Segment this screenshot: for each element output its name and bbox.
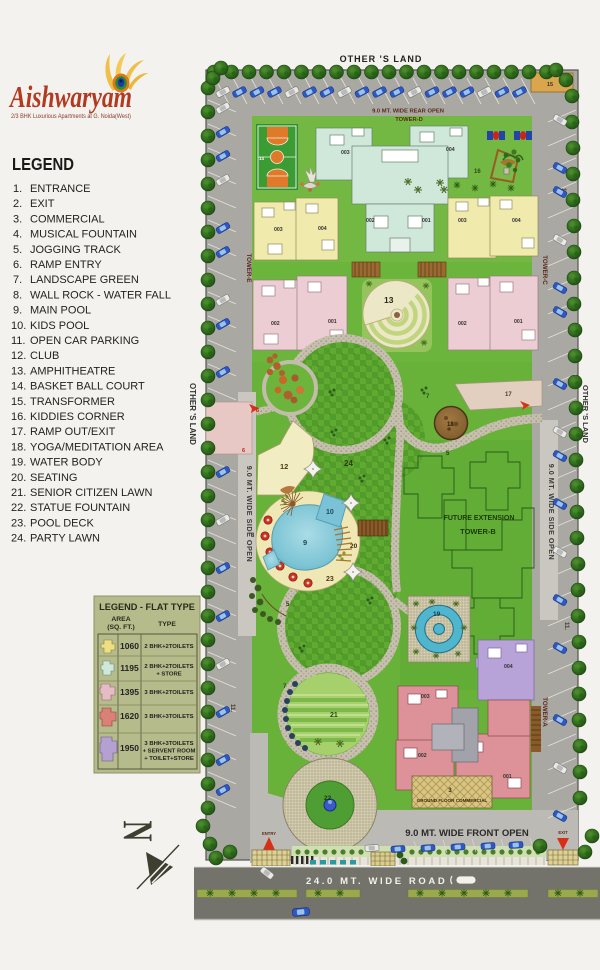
svg-text:10: 10	[326, 509, 334, 516]
svg-text:17.: 17.	[11, 426, 26, 438]
svg-text:3.: 3.	[13, 213, 22, 225]
svg-text:GROUND FLOOR COMMERCIAL: GROUND FLOOR COMMERCIAL	[417, 798, 488, 803]
svg-text:2 BHK+2TOILETS: 2 BHK+2TOILETS	[144, 664, 193, 670]
svg-text:13.: 13.	[11, 365, 26, 377]
svg-text:23.: 23.	[11, 517, 26, 529]
svg-text:OTHER 'S LAND: OTHER 'S LAND	[188, 383, 197, 445]
svg-text:9.0 MT. WIDE FRONT OPEN: 9.0 MT. WIDE FRONT OPEN	[405, 828, 529, 839]
svg-text:OPEN CAR PARKING: OPEN CAR PARKING	[30, 335, 139, 347]
svg-text:ENTRANCE: ENTRANCE	[30, 183, 91, 195]
svg-text:16.: 16.	[11, 411, 26, 423]
svg-text:9.0 MT. WIDE SIDE OPEN: 9.0 MT. WIDE SIDE OPEN	[245, 466, 254, 562]
svg-text:AREA: AREA	[111, 616, 130, 623]
svg-text:12: 12	[280, 462, 288, 471]
svg-text:KIDS POOL: KIDS POOL	[30, 320, 89, 332]
svg-text:PARTY LAWN: PARTY LAWN	[30, 533, 100, 545]
svg-text:004: 004	[446, 147, 455, 153]
svg-text:002: 002	[418, 753, 427, 759]
svg-text:12.: 12.	[11, 350, 26, 362]
svg-text:TOWER-C: TOWER-C	[541, 255, 548, 285]
svg-text:1620: 1620	[120, 711, 139, 721]
svg-text:1060: 1060	[120, 641, 139, 651]
svg-text:004: 004	[318, 226, 327, 232]
svg-text:WALL ROCK - WATER FALL: WALL ROCK - WATER FALL	[30, 289, 171, 301]
svg-text:1195: 1195	[120, 663, 139, 673]
svg-text:3 BHK+2TOILETS: 3 BHK+2TOILETS	[144, 690, 193, 696]
svg-text:002: 002	[271, 321, 280, 327]
svg-text:003: 003	[341, 150, 350, 156]
svg-text:15.: 15.	[11, 396, 26, 408]
svg-text:2 BHK+2TOILETS: 2 BHK+2TOILETS	[144, 644, 193, 650]
svg-text:004: 004	[504, 664, 513, 670]
svg-text:1950: 1950	[120, 743, 139, 753]
svg-text:BASKET BALL COURT: BASKET BALL COURT	[30, 381, 145, 393]
svg-text:11.: 11.	[11, 335, 25, 347]
svg-text:14: 14	[259, 156, 264, 161]
svg-text:001: 001	[503, 774, 512, 780]
svg-text:LANDSCAPE GREEN: LANDSCAPE GREEN	[30, 274, 139, 286]
svg-text:STATUE FOUNTAIN: STATUE FOUNTAIN	[30, 502, 130, 514]
svg-text:EXIT: EXIT	[558, 830, 568, 835]
svg-text:16: 16	[474, 169, 481, 175]
svg-text:5.: 5.	[13, 244, 22, 256]
svg-text:ENTRY: ENTRY	[262, 831, 276, 836]
svg-text:MAIN POOL: MAIN POOL	[30, 305, 91, 317]
svg-text:20.: 20.	[11, 472, 26, 484]
svg-text:24.: 24.	[11, 533, 26, 545]
svg-text:+ TOILET+STORE: + TOILET+STORE	[144, 756, 194, 762]
svg-text:AMPHITHEATRE: AMPHITHEATRE	[30, 365, 115, 377]
svg-text:20: 20	[350, 543, 358, 550]
svg-text:3 BHK+3TOILETS: 3 BHK+3TOILETS	[144, 714, 193, 720]
svg-text:YOGA/MEDITATION AREA: YOGA/MEDITATION AREA	[30, 441, 164, 453]
svg-text:RAMP OUT/EXIT: RAMP OUT/EXIT	[30, 426, 116, 438]
svg-text:TOWER-E: TOWER-E	[245, 253, 252, 282]
svg-text:13: 13	[384, 295, 394, 305]
svg-text:1395: 1395	[120, 687, 139, 697]
svg-text:+ SERVENT ROOM: + SERVENT ROOM	[143, 749, 196, 755]
svg-text:OTHER 'S LAND: OTHER 'S LAND	[340, 54, 423, 64]
svg-text:6.: 6.	[13, 259, 22, 271]
svg-text:003: 003	[274, 227, 283, 233]
svg-text:COMMERCIAL: COMMERCIAL	[30, 213, 105, 225]
svg-text:1.: 1.	[13, 183, 22, 195]
svg-text:JOGGING TRACK: JOGGING TRACK	[30, 244, 122, 256]
svg-text:TOWER-B: TOWER-B	[460, 527, 496, 536]
svg-text:2/3 BHK Luxurious Apartments a: 2/3 BHK Luxurious Apartments at G. Noida…	[11, 113, 131, 120]
svg-text:4.: 4.	[13, 229, 22, 241]
svg-text:KIDDIES CORNER: KIDDIES CORNER	[30, 411, 125, 423]
svg-text:SEATING: SEATING	[30, 472, 77, 484]
svg-text:19.: 19.	[11, 457, 26, 469]
svg-text:15: 15	[547, 82, 553, 88]
svg-text:6: 6	[256, 408, 259, 414]
svg-text:6: 6	[242, 448, 245, 454]
svg-text:2.: 2.	[13, 198, 22, 210]
svg-text:18.: 18.	[11, 441, 26, 453]
svg-text:RAMP ENTRY: RAMP ENTRY	[30, 259, 102, 271]
svg-text:002: 002	[458, 321, 467, 327]
svg-text:Aishwaryam: Aishwaryam	[8, 79, 132, 114]
svg-text:24.0 MT. WIDE ROAD: 24.0 MT. WIDE ROAD	[306, 876, 447, 887]
svg-text:001: 001	[422, 218, 431, 224]
svg-text:9.: 9.	[13, 305, 22, 317]
svg-text:3 BHK+3TOILETS: 3 BHK+3TOILETS	[144, 741, 193, 747]
svg-text:001: 001	[328, 319, 337, 325]
svg-text:9.0 MT. WIDE SIDE OPEN: 9.0 MT. WIDE SIDE OPEN	[547, 464, 556, 560]
svg-text:21: 21	[330, 712, 338, 719]
svg-text:11.: 11.	[563, 622, 569, 630]
svg-text:24: 24	[344, 459, 353, 468]
svg-text:POOL DECK: POOL DECK	[30, 517, 94, 529]
svg-text:TRANSFORMER: TRANSFORMER	[30, 396, 115, 408]
svg-text:19: 19	[433, 611, 441, 618]
svg-text:23: 23	[326, 576, 334, 583]
svg-text:MUSICAL FOUNTAIN: MUSICAL FOUNTAIN	[30, 229, 137, 241]
svg-text:8.: 8.	[13, 289, 22, 301]
svg-text:18: 18	[447, 422, 454, 428]
svg-text:22.: 22.	[11, 502, 26, 514]
svg-text:EXIT: EXIT	[30, 198, 55, 210]
svg-text:17: 17	[505, 392, 512, 398]
svg-text:9.0 MT. WIDE REAR OPEN: 9.0 MT. WIDE REAR OPEN	[372, 109, 444, 115]
svg-text:TOWER-D: TOWER-D	[395, 117, 423, 123]
svg-text:002: 002	[366, 218, 375, 224]
svg-text:FUTURE EXTENSION: FUTURE EXTENSION	[444, 515, 515, 522]
svg-text:9: 9	[303, 538, 307, 547]
svg-text:21.: 21.	[11, 487, 26, 499]
svg-text:LEGEND: LEGEND	[12, 154, 74, 174]
svg-text:001: 001	[514, 319, 523, 325]
svg-text:22: 22	[324, 795, 332, 802]
svg-text:003: 003	[421, 694, 430, 700]
svg-text:WATER BODY: WATER BODY	[30, 457, 103, 469]
svg-text:+ STORE: + STORE	[156, 672, 181, 678]
svg-text:CLUB: CLUB	[30, 350, 59, 362]
svg-text:7.: 7.	[13, 274, 22, 286]
svg-text:TYPE: TYPE	[158, 621, 176, 628]
svg-text:N: N	[113, 821, 159, 842]
svg-text:14.: 14.	[11, 381, 26, 393]
svg-text:TOWER-A: TOWER-A	[541, 697, 548, 727]
svg-text:SENIOR CITIZEN LAWN: SENIOR CITIZEN LAWN	[30, 487, 152, 499]
svg-text:10.: 10.	[11, 320, 26, 332]
svg-text:(SQ. FT.): (SQ. FT.)	[107, 624, 135, 631]
svg-text:LEGEND - FLAT TYPE: LEGEND - FLAT TYPE	[99, 602, 195, 612]
svg-text:003: 003	[458, 218, 467, 224]
svg-text:004: 004	[512, 218, 521, 224]
